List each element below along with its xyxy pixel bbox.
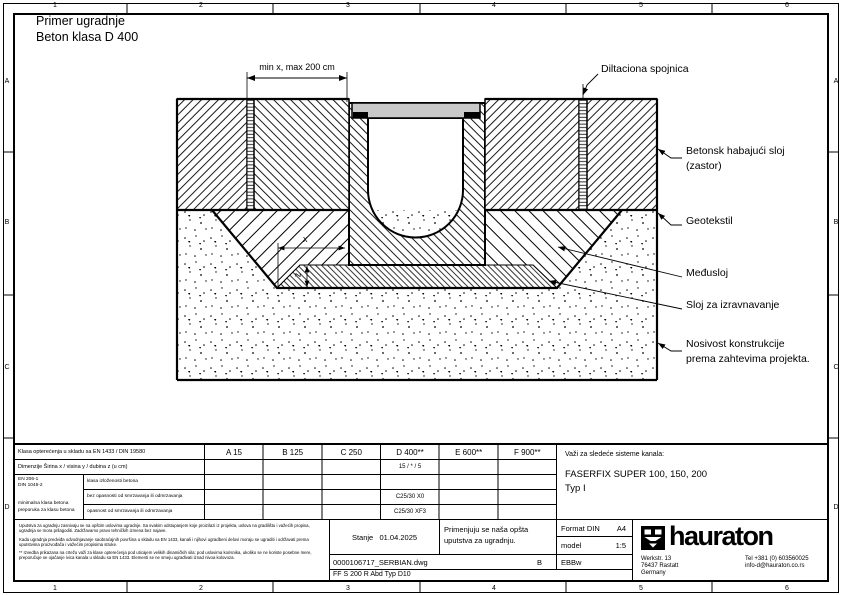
channel-body bbox=[349, 103, 485, 265]
label-interlayer: Međusloj bbox=[686, 266, 728, 280]
leader-dilatation bbox=[583, 74, 598, 95]
status-date: 01.04.2025 bbox=[380, 533, 418, 542]
bedding-layer bbox=[277, 265, 557, 288]
dilatation-joint-left bbox=[247, 99, 254, 210]
title-block-table: Klasa opterećenja u skladu sa EN 1433 / … bbox=[13, 443, 829, 582]
label-dilatation-joint: Diltaciona spojnica bbox=[601, 62, 689, 76]
brand-name: hauraton bbox=[669, 521, 773, 551]
hauraton-logo-icon bbox=[641, 526, 665, 550]
label-wear-layer-line2: (zastor) bbox=[686, 159, 722, 173]
d400-dimensions-value: 15 / * / 5 bbox=[381, 460, 439, 475]
disclaimer-paragraph-1: Uputstva za ugradnju zasnivaju se na opš… bbox=[19, 523, 325, 534]
class-b125: B 125 bbox=[264, 445, 322, 460]
norm-note1: minimalna klasa betona bbox=[18, 501, 68, 506]
scale-value: 1:5 bbox=[616, 537, 626, 555]
address-line1: Werkstr. 13 bbox=[641, 556, 671, 563]
format-label: Format DIN bbox=[561, 520, 600, 537]
dilatation-joint-right bbox=[579, 99, 587, 210]
load-class-grid: A 15 B 125 C 250 D 400** E 600** F 900**… bbox=[205, 445, 557, 520]
label-wear-layer-line1: Betonsk habajući sloj bbox=[686, 144, 785, 158]
exposure-row-1-label: klasa izloženosti betona bbox=[84, 475, 205, 490]
code-cell: EBBw bbox=[557, 555, 633, 570]
pavement-slab-4 bbox=[587, 99, 657, 210]
address-line3: Germany bbox=[641, 570, 666, 577]
label-leveling-layer: Sloj za izravnavanje bbox=[686, 298, 779, 312]
address-line2: 76437 Rastatt bbox=[641, 563, 678, 570]
label-geotextile: Geotekstil bbox=[686, 214, 733, 228]
class-a15: A 15 bbox=[205, 445, 263, 460]
filename-row: 0000106717_SERBIAN.dwg B bbox=[330, 555, 557, 570]
norm-line1: EN 206-1 bbox=[18, 477, 38, 482]
dimension-z-label: z bbox=[292, 273, 302, 278]
type-line-cell: FF S 200 R Abd Typ D10 bbox=[330, 570, 633, 580]
scale-row: model 1:5 bbox=[557, 537, 633, 555]
norm-cell: EN 206-1 DIN 1045-2 minimalna klasa beto… bbox=[15, 475, 84, 520]
disclaimer-paragraph-2: Kada ugradnja predviđa odvodnjavanje sao… bbox=[19, 537, 325, 548]
status-label: Stanje bbox=[352, 533, 373, 542]
page-title-line2: Beton klasa D 400 bbox=[36, 30, 138, 45]
grating-seat-left bbox=[353, 112, 368, 118]
filename: 0000106717_SERBIAN.dwg bbox=[333, 555, 428, 570]
format-row: Format DIN A4 bbox=[557, 520, 633, 537]
systems-line1: FASERFIX SUPER 100, 150, 200 bbox=[565, 469, 707, 480]
format-value: A4 bbox=[617, 520, 626, 537]
dimension-top-label: min x, max 200 cm bbox=[237, 62, 357, 72]
dimension-x-label: x bbox=[303, 234, 308, 244]
contact-email: info-d@hauraton.co.rs bbox=[745, 563, 804, 570]
class-d400: D 400** bbox=[381, 445, 439, 460]
label-bearing-line1: Nosivost konstrukcije bbox=[686, 337, 785, 351]
installation-note: Primenjuju se naša opšta uputstva za ugr… bbox=[440, 520, 557, 555]
pavement-slab-2 bbox=[254, 99, 349, 210]
d400-concrete-x0: C25/30 X0 bbox=[381, 490, 439, 505]
systems-heading: Važi za sledeće sisteme kanala: bbox=[565, 451, 664, 458]
status-cell: Stanje 01.04.2025 bbox=[330, 520, 440, 555]
leader-wear-layer bbox=[658, 149, 682, 158]
leader-geotextile bbox=[658, 213, 682, 225]
disclaimer-block: Uputstva za ugradnju zasnivaju se na opš… bbox=[15, 520, 330, 580]
norm-note2: preporuka za klasu betona bbox=[18, 508, 75, 513]
drawing-sheet: 1 2 3 4 5 6 1 2 3 4 5 6 A B C D A B C D bbox=[0, 0, 842, 595]
dimensions-row-label: Dimenzije Širina x / visina y / dubina z… bbox=[15, 460, 205, 475]
exposure-row-3-label: opasnost od smrzavanja ili odmrzavanja bbox=[84, 505, 205, 520]
systems-block: Važi za sledeće sisteme kanala: FASERFIX… bbox=[557, 445, 827, 520]
logo-block: hauraton Werkstr. 13 76437 Rastatt Germa… bbox=[633, 520, 827, 580]
class-e600: E 600** bbox=[440, 445, 498, 460]
pavement-slab-1 bbox=[177, 99, 247, 210]
class-c250: C 250 bbox=[322, 445, 380, 460]
class-f900: F 900** bbox=[498, 445, 556, 460]
grating bbox=[352, 103, 480, 118]
dimension-top bbox=[247, 72, 583, 102]
contact-phone: Tel +381 (0) 603560025 bbox=[745, 556, 809, 563]
systems-line2: Typ I bbox=[565, 483, 586, 494]
label-bearing-line2: prema zahtevima projekta. bbox=[686, 352, 810, 366]
d400-concrete-xf3: C25/30 XF3 bbox=[381, 505, 439, 520]
pavement-slab-3 bbox=[485, 99, 579, 210]
page-title-line1: Primer ugradnje bbox=[36, 14, 125, 29]
leader-bearing bbox=[658, 343, 682, 351]
load-class-header-label: Klasa opterećenja u skladu sa EN 1433 / … bbox=[15, 445, 205, 460]
exposure-row-2-label: bez opasnosti od smrzavanja ili odmrzava… bbox=[84, 490, 205, 505]
disclaimer-paragraph-3: ** Izvedba prikazana na crtežu važi za k… bbox=[19, 550, 325, 561]
scale-label: model bbox=[561, 537, 581, 555]
norm-line2: DIN 1045-2 bbox=[18, 483, 43, 488]
revision-letter: B bbox=[537, 555, 542, 570]
grating-seat-right bbox=[464, 112, 480, 118]
